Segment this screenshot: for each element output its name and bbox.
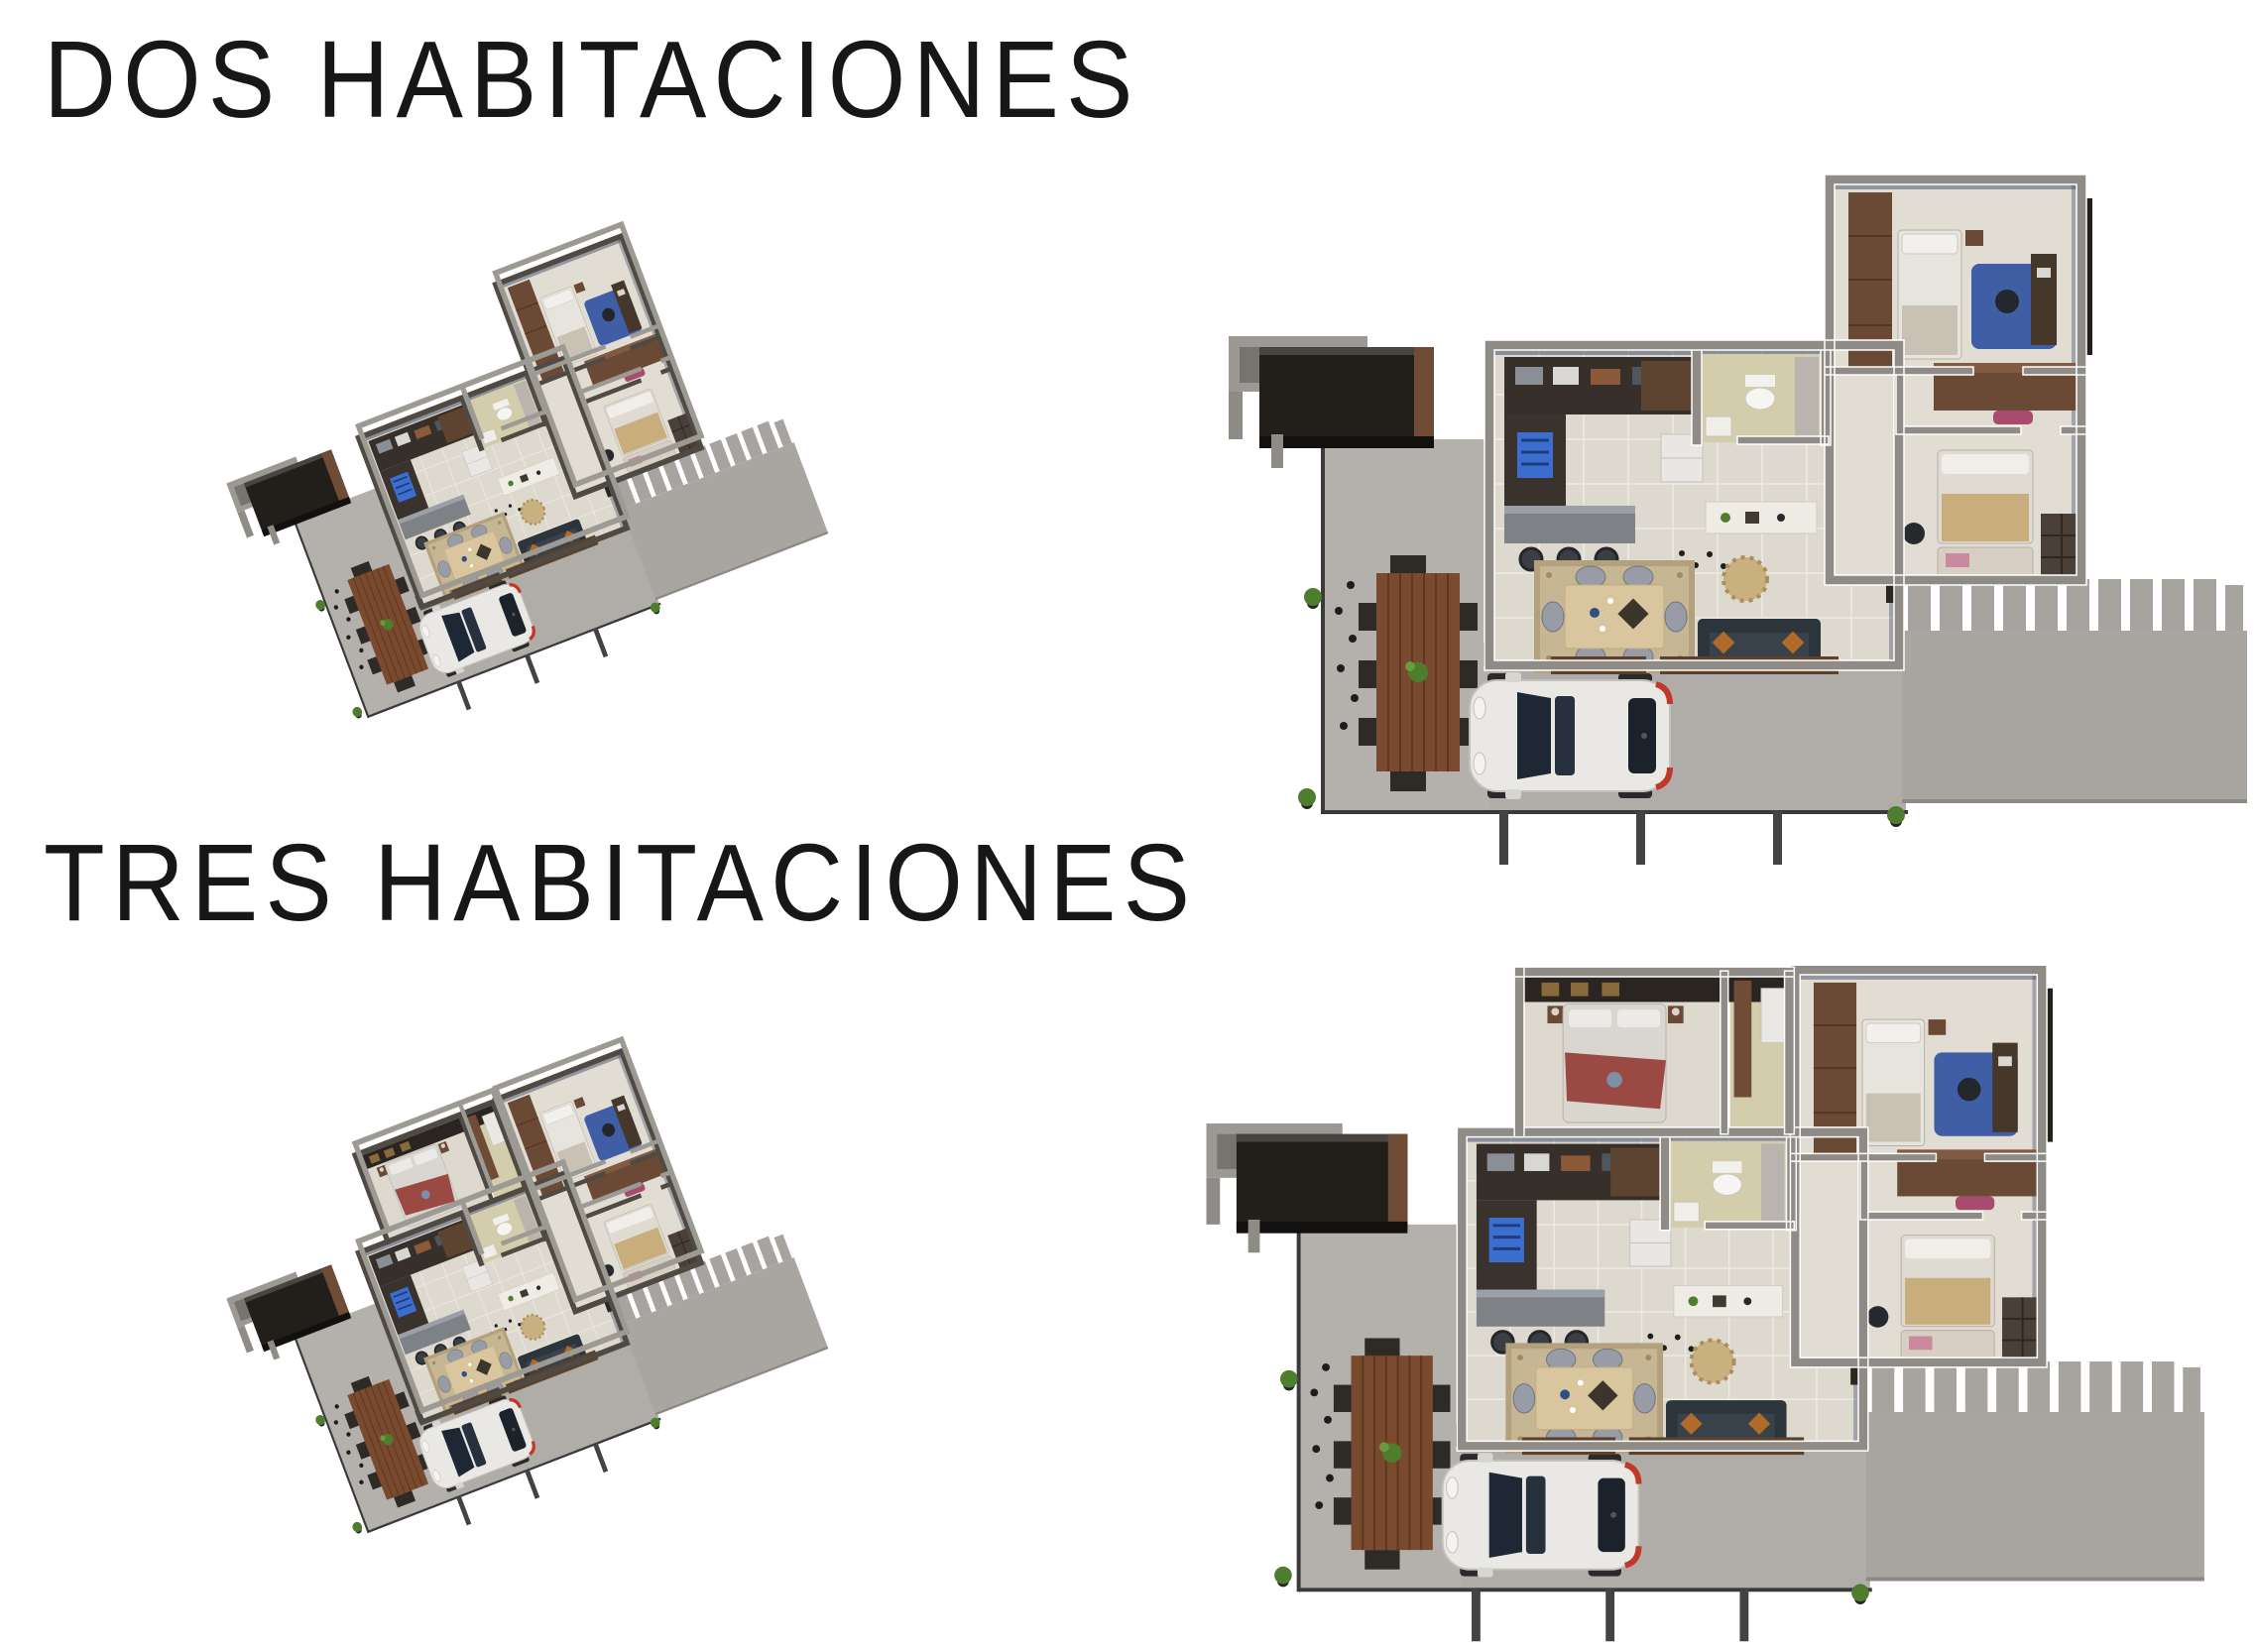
- page: { "page": { "background": "#ffffff", "la…: [0, 0, 2255, 1622]
- master-bedroom: [1522, 977, 1788, 1132]
- section-title-tres: TRES HABITACIONES: [44, 819, 1197, 946]
- floorplan-3bed-topdown: [1180, 928, 2249, 1652]
- floorplan-2bed-topdown: [1202, 137, 2255, 876]
- floorplan-3bed-isometric: [115, 936, 892, 1616]
- floorplan-2bed-isometric: [115, 121, 892, 801]
